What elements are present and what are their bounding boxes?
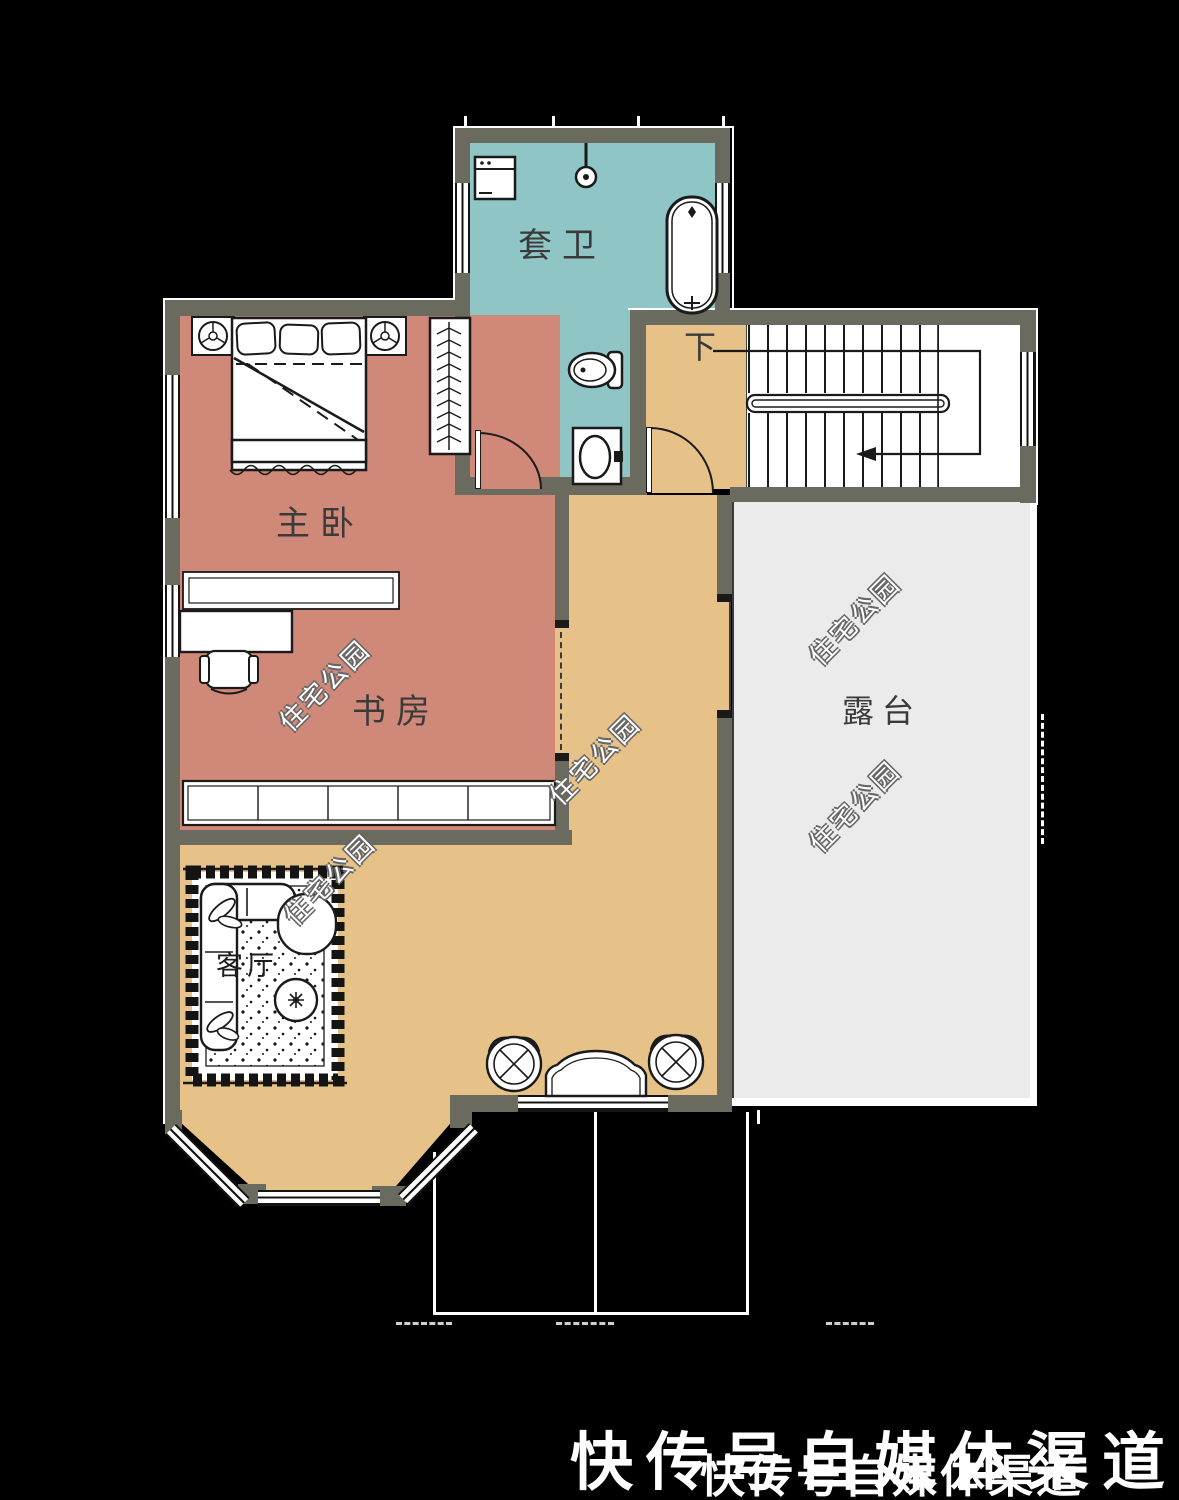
bathroom-label: 套卫 bbox=[518, 218, 606, 267]
shower-head bbox=[576, 143, 596, 187]
desk bbox=[180, 611, 292, 652]
study-label: 书房 bbox=[352, 684, 440, 733]
double-bed bbox=[230, 318, 366, 475]
washing-machine bbox=[475, 157, 515, 199]
stairs-down-label: 下 bbox=[684, 322, 716, 368]
terrace-label: 露台 bbox=[842, 686, 922, 732]
balcony-armchair-left bbox=[487, 1037, 541, 1091]
study-shelf bbox=[183, 572, 399, 609]
bathtub bbox=[667, 197, 717, 313]
stair-rail bbox=[747, 325, 949, 487]
master-bedroom-label: 主卧 bbox=[276, 496, 364, 545]
balcony-table bbox=[546, 1051, 646, 1096]
balcony-armchair-right bbox=[649, 1035, 703, 1089]
nightstand-left bbox=[192, 317, 234, 355]
coffee-table bbox=[275, 979, 317, 1021]
toilet bbox=[569, 352, 622, 388]
floor-plan-stage: 套卫 主卧 书房 下 露台 客厅 住宅公园 住宅公园 住宅公园 住宅公园 住宅公… bbox=[0, 0, 1179, 1500]
washbasin bbox=[573, 428, 623, 484]
bookshelf bbox=[183, 781, 555, 825]
footer-watermark-small: 快传号自媒体渠道 bbox=[700, 1440, 1084, 1500]
nightstand-right bbox=[364, 317, 406, 355]
wardrobe bbox=[430, 318, 470, 454]
living-room-label: 客厅 bbox=[216, 944, 278, 983]
desk-chair bbox=[200, 651, 258, 694]
